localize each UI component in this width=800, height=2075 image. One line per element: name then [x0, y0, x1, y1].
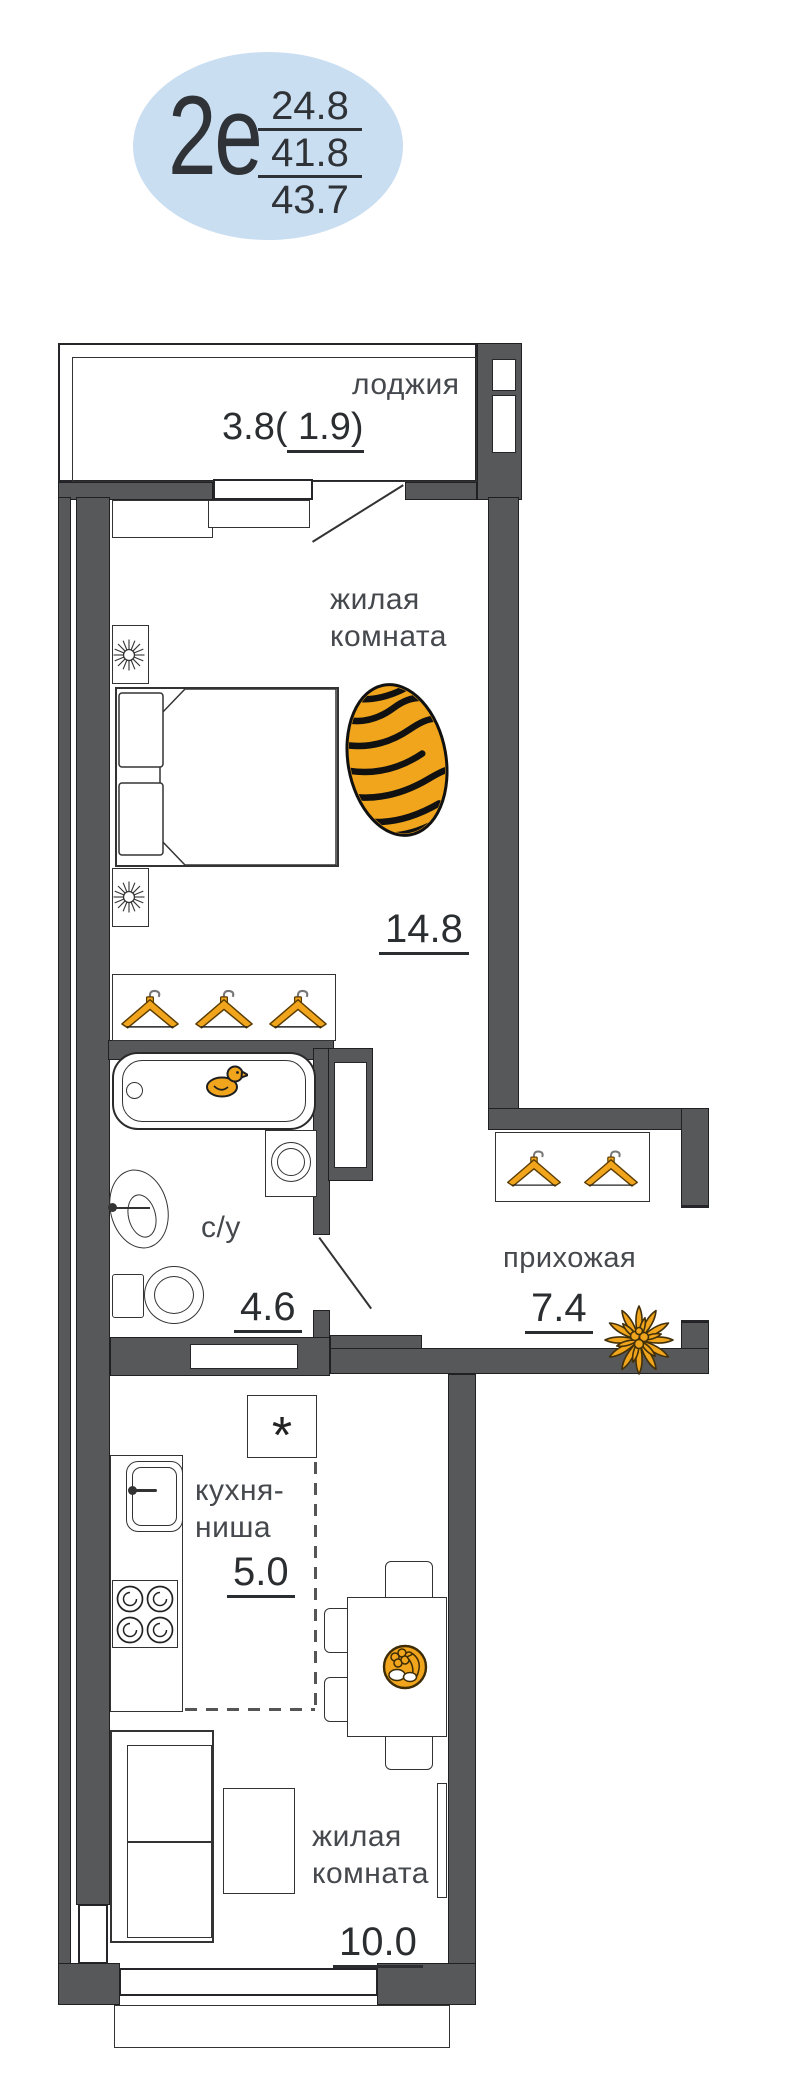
potted-plant-icon [593, 1296, 685, 1380]
vent-shaft-inset [190, 1344, 298, 1369]
bathtub-drain [126, 1082, 143, 1099]
loggia-area-reduced: 1.9) [287, 406, 363, 453]
hallway-closet [495, 1132, 650, 1202]
wall-left-main [76, 497, 110, 1905]
coffee-table [223, 1788, 295, 1894]
kitchen-note-box: * [247, 1395, 317, 1458]
bathroom-faucet-knob [108, 1203, 117, 1212]
wall-right-bottom-room [448, 1374, 476, 2005]
wall-left-outer-strip [58, 497, 71, 2005]
window-sill-left [112, 500, 213, 538]
bathroom-area: 4.6 [234, 1286, 302, 1333]
hanger-icon [505, 1145, 563, 1189]
wall-bottom-left [58, 1963, 120, 2005]
badge-area-mid: 41.8 [258, 128, 362, 175]
bathroom-faucet [112, 1207, 150, 1209]
toilet-bowl-inner [154, 1276, 194, 1314]
sofa-cushion-divider [127, 1841, 212, 1843]
wall-loggia-band-right [405, 482, 477, 500]
living-bottom-area: 10.0 [333, 1921, 423, 1968]
washing-machine-drum-inner [277, 1148, 305, 1176]
fruit-bowl-icon [380, 1642, 430, 1692]
entrance-door-opening [681, 1208, 709, 1320]
wardrobe [112, 974, 336, 1041]
loggia-area-total: 3.8( [222, 406, 287, 448]
kitchen-sink-inner [132, 1467, 177, 1526]
column-inset-upper [492, 359, 516, 391]
loggia-window [213, 479, 313, 500]
wall-tv [437, 1783, 447, 1898]
kitchen-faucet-knob [128, 1486, 137, 1495]
wall-hallway-top [488, 1108, 701, 1130]
loggia-label: лоджия [352, 366, 459, 403]
kitchen-note-symbol: * [272, 1392, 292, 1462]
lamp-sunburst-icon [111, 879, 147, 915]
wall-right-living-top [488, 497, 519, 1130]
badge-area-total: 43.7 [258, 175, 362, 222]
hallway-area: 7.4 [525, 1287, 593, 1334]
floorplan-page: 2е 24.8 41.8 43.7 [0, 0, 800, 2075]
tiger-rug [345, 680, 450, 840]
bathroom-door-swing [318, 1237, 372, 1309]
hallway-label: прихожая [503, 1240, 636, 1277]
kitchen-zone-dashed-line-horizontal [185, 1708, 315, 1711]
bathroom-label: с/у [201, 1209, 241, 1246]
window-sill-right [208, 500, 310, 528]
wall-bottom-right [377, 1963, 476, 2005]
living-bottom-label: жилая комната [312, 1818, 429, 1892]
bathroom-door-leaf-pocket [334, 1062, 367, 1168]
column-inset-lower [492, 395, 516, 453]
hanger-icon [119, 984, 181, 1031]
wall-divider-knot [330, 1335, 422, 1349]
window-bottom [120, 1968, 377, 1996]
toilet-tank [112, 1274, 144, 1318]
balcony-door-swing [312, 484, 404, 542]
stove-burners-icon [112, 1580, 178, 1648]
hanger-icon [582, 1145, 640, 1189]
kitchen-label: кухня- ниша [195, 1472, 284, 1546]
window-left-bottom-room [78, 1905, 108, 1963]
wall-right-outer-upper [681, 1108, 709, 1208]
lamp-sunburst-icon [111, 637, 147, 673]
hanger-icon [267, 984, 329, 1031]
apartment-type-label: 2е [168, 76, 260, 196]
kitchen-area: 5.0 [227, 1551, 295, 1598]
rubber-duck-icon [204, 1062, 248, 1100]
badge-area-living: 24.8 [258, 84, 362, 128]
living-top-label: жилая комната [330, 581, 447, 655]
hanger-icon [193, 984, 255, 1031]
living-top-area: 14.8 [379, 908, 469, 955]
double-bed [115, 687, 339, 867]
loggia-area: 3.8( 1.9) [222, 406, 364, 449]
kitchen-zone-dashed-line-vertical [314, 1462, 317, 1710]
bottom-ledge [114, 2005, 450, 2048]
badge-area-stack: 24.8 41.8 43.7 [258, 84, 362, 222]
